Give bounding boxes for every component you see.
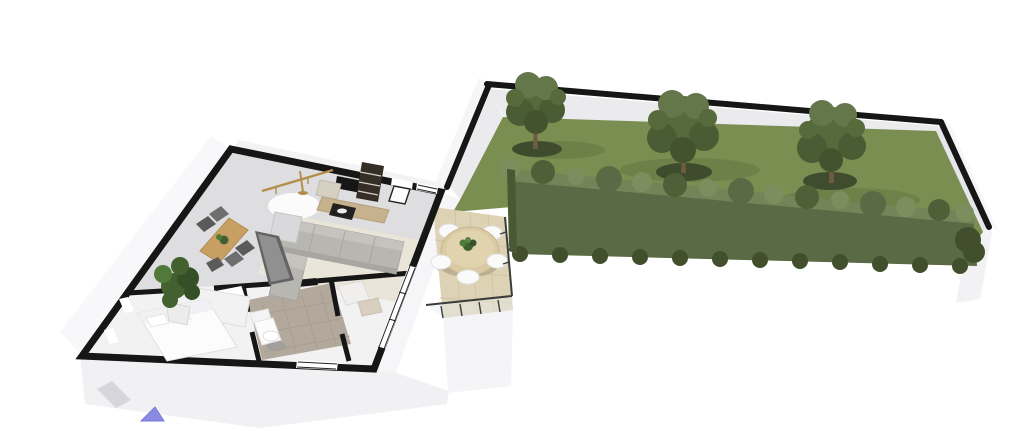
table-tray: [337, 209, 347, 214]
terrace-podium-face: [443, 310, 513, 393]
terrace-chair[interactable]: [431, 255, 451, 269]
armchair[interactable]: [316, 180, 341, 199]
garden: [447, 72, 989, 274]
floorplan-stage: [0, 0, 1024, 431]
terrace: [426, 207, 513, 318]
terrace-table[interactable]: [441, 227, 499, 275]
terrace-chair[interactable]: [457, 270, 479, 284]
lamp-base: [298, 191, 308, 195]
table-plant: [216, 234, 222, 240]
toilet-seat: [263, 331, 279, 341]
terrace-chair[interactable]: [487, 254, 507, 268]
floorplan-3d-canvas[interactable]: [0, 0, 1024, 431]
